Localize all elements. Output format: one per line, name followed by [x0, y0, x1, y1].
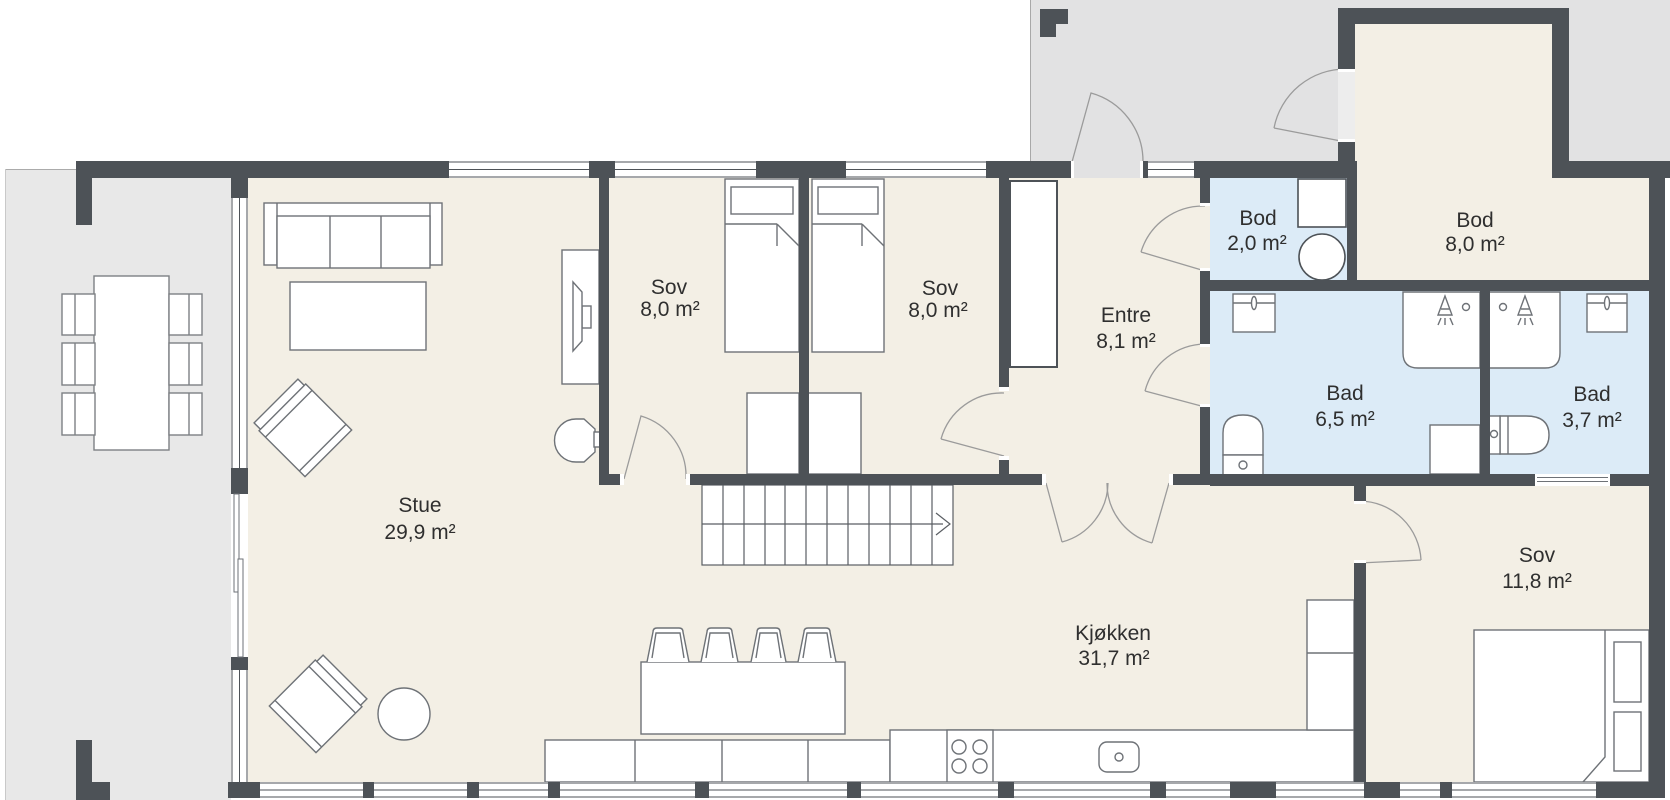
svg-text:31,7 m²: 31,7 m²: [1078, 647, 1149, 670]
svg-text:8,0 m²: 8,0 m²: [908, 299, 968, 322]
svg-text:Sov: Sov: [1519, 544, 1556, 567]
svg-text:Bod: Bod: [1239, 207, 1276, 230]
svg-text:8,1 m²: 8,1 m²: [1096, 330, 1156, 353]
svg-text:Bad: Bad: [1573, 383, 1610, 406]
svg-text:Bad: Bad: [1326, 382, 1363, 405]
svg-text:2,0 m²: 2,0 m²: [1227, 232, 1287, 255]
svg-text:6,5 m²: 6,5 m²: [1315, 408, 1375, 431]
svg-text:11,8 m²: 11,8 m²: [1502, 570, 1572, 593]
svg-text:29,9 m²: 29,9 m²: [384, 521, 455, 544]
svg-text:Sov: Sov: [651, 276, 688, 299]
svg-text:Bod: Bod: [1456, 209, 1493, 232]
svg-text:Entre: Entre: [1101, 304, 1151, 327]
svg-text:Stue: Stue: [398, 494, 441, 517]
svg-text:Kjøkken: Kjøkken: [1075, 622, 1151, 645]
svg-text:Sov: Sov: [922, 277, 959, 300]
svg-text:3,7 m²: 3,7 m²: [1562, 409, 1622, 432]
svg-text:8,0 m²: 8,0 m²: [1445, 233, 1505, 256]
svg-text:8,0 m²: 8,0 m²: [640, 298, 700, 321]
